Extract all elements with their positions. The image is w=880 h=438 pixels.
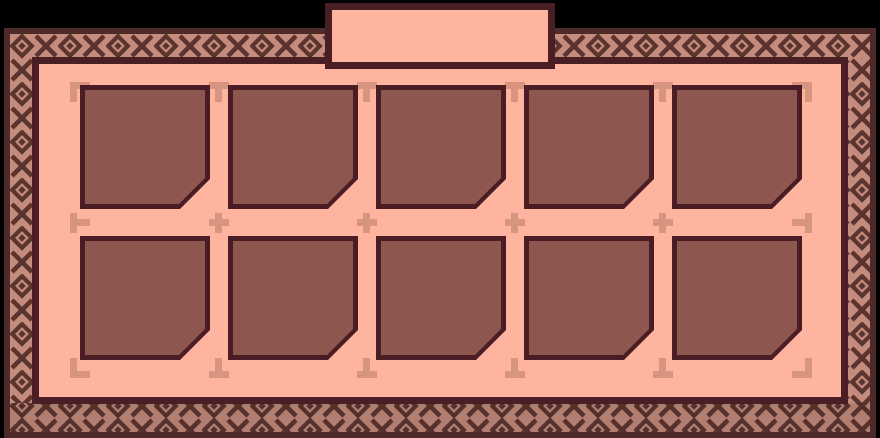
inventory-slot[interactable] [672,85,802,209]
plus-mark-icon [659,213,666,233]
inventory-slot[interactable] [672,236,802,360]
plus-mark-icon [363,213,370,233]
slot-fill [529,90,649,204]
t-mark-icon [653,371,673,378]
inventory-slot[interactable] [376,236,506,360]
t-mark-icon [215,89,222,102]
t-mark-icon [363,358,370,371]
plus-mark-icon [215,213,222,233]
inventory-panel [32,57,848,404]
slot-fill [677,90,797,204]
slot-fill [381,241,501,355]
t-mark-icon [357,82,377,89]
slot-fill [381,90,501,204]
slot-fill [233,241,353,355]
inventory-slot[interactable] [376,85,506,209]
t-mark-icon [653,82,673,89]
slot-grid [39,64,841,397]
slot-fill [677,241,797,355]
game-screen [0,0,880,438]
t-mark-icon [77,219,90,226]
t-mark-icon [511,89,518,102]
t-mark-icon [511,358,518,371]
t-mark-icon [215,358,222,371]
inventory-slot[interactable] [524,85,654,209]
inventory-slot[interactable] [228,85,358,209]
corner-bracket-icon [70,82,77,102]
corner-bracket-icon [792,371,812,378]
t-mark-icon [805,213,812,233]
inventory-slot[interactable] [80,85,210,209]
plus-mark-icon [511,213,518,233]
slot-fill [529,241,649,355]
corner-bracket-icon [805,82,812,102]
slot-fill [85,241,205,355]
inventory-slot[interactable] [80,236,210,360]
t-mark-icon [505,371,525,378]
slot-fill [233,90,353,204]
t-mark-icon [209,371,229,378]
t-mark-icon [792,219,805,226]
inventory-slot[interactable] [524,236,654,360]
t-mark-icon [357,371,377,378]
t-mark-icon [363,89,370,102]
t-mark-icon [505,82,525,89]
t-mark-icon [209,82,229,89]
slot-fill [85,90,205,204]
t-mark-icon [659,358,666,371]
t-mark-icon [70,213,77,233]
inventory-slot[interactable] [228,236,358,360]
corner-bracket-icon [70,371,90,378]
t-mark-icon [659,89,666,102]
panel-tab[interactable] [325,3,555,69]
